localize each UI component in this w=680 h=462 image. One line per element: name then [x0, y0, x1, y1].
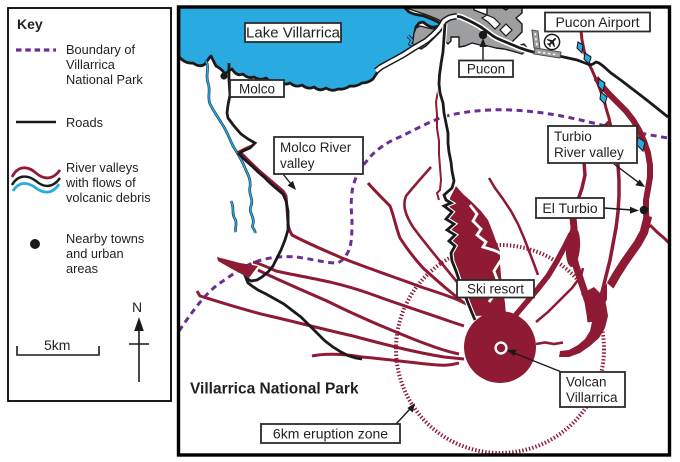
- svg-text:Molco River: Molco River: [280, 140, 352, 155]
- svg-text:Roads: Roads: [66, 115, 103, 130]
- svg-text:5km: 5km: [44, 337, 70, 353]
- svg-text:Volcan: Volcan: [566, 375, 607, 390]
- svg-text:Ski resort: Ski resort: [467, 282, 524, 297]
- svg-text:Lake Villarrica: Lake Villarrica: [246, 25, 341, 42]
- svg-text:Pucon: Pucon: [467, 62, 505, 77]
- svg-text:River valleys: River valleys: [66, 160, 139, 175]
- svg-text:Villarrica: Villarrica: [66, 57, 116, 72]
- svg-text:Villarrica: Villarrica: [566, 390, 618, 405]
- svg-text:Pucon Airport: Pucon Airport: [555, 14, 639, 30]
- svg-text:and urban: and urban: [66, 246, 124, 261]
- svg-text:National Park: National Park: [66, 72, 143, 87]
- svg-text:Nearby towns: Nearby towns: [66, 231, 144, 246]
- svg-text:volcanic debris: volcanic debris: [66, 190, 151, 205]
- svg-text:N: N: [132, 299, 142, 315]
- svg-text:El Turbio: El Turbio: [542, 200, 597, 216]
- svg-text:River valley: River valley: [554, 145, 624, 160]
- svg-text:Molco: Molco: [239, 82, 275, 97]
- svg-text:Turbio: Turbio: [554, 129, 592, 144]
- svg-text:areas: areas: [66, 261, 98, 276]
- svg-text:valley: valley: [280, 156, 315, 171]
- svg-text:Villarrica National Park: Villarrica National Park: [190, 381, 359, 398]
- svg-text:Boundary of: Boundary of: [66, 42, 135, 57]
- svg-text:6km eruption zone: 6km eruption zone: [273, 426, 388, 442]
- svg-text:with flows of: with flows of: [65, 175, 136, 190]
- svg-text:Key: Key: [17, 16, 43, 32]
